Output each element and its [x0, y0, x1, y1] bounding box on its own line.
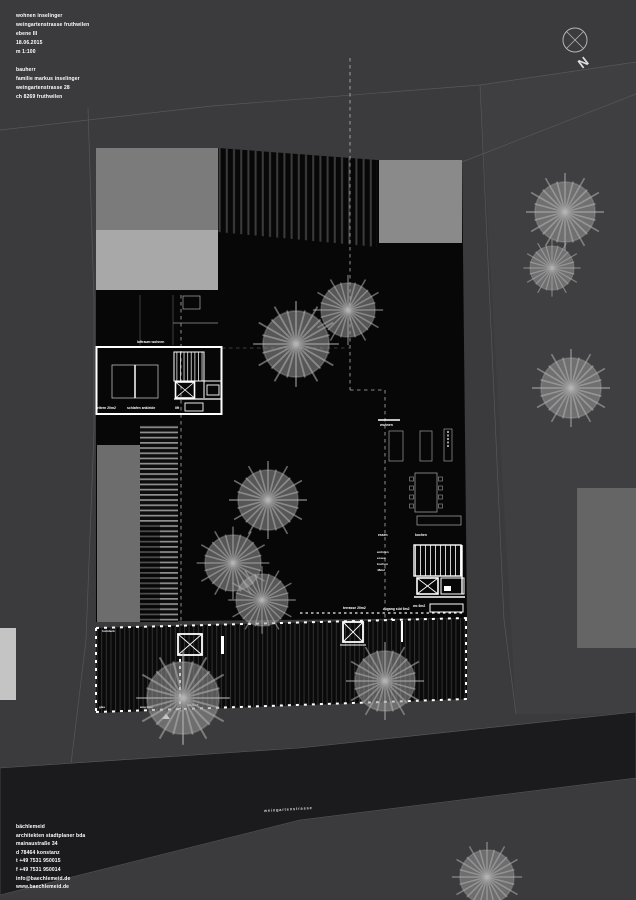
- project-name: wohnen inselinger: [16, 12, 89, 21]
- long-stair-shadow: [140, 525, 160, 622]
- neighbor-building-west: [0, 628, 16, 700]
- stair-main: [414, 545, 461, 576]
- label-deck: holzdeck: [102, 629, 115, 633]
- label-essen: essen: [378, 533, 388, 537]
- west-deck: [97, 445, 140, 622]
- roof-terrace-upper: [96, 148, 218, 230]
- label-wohnen: wohnen: [379, 423, 393, 427]
- firm-website: www.baechlemeid.de: [16, 883, 85, 892]
- label-glas: glas: [99, 705, 105, 709]
- project-date: 18.06.2015: [16, 39, 89, 48]
- firm-fax: f +49 7531 950014: [16, 866, 85, 875]
- label-luftraum: luftraum wohnen: [137, 340, 164, 344]
- firm-phone: t +49 7531 950015: [16, 857, 85, 866]
- client-heading: bauherr: [16, 66, 89, 75]
- label-zugang: zugang süd 6m2: [383, 607, 410, 611]
- firm-name: bächlemeid: [16, 823, 85, 832]
- label-eltern: eltern 20m2: [97, 406, 116, 410]
- neighbor-building-east: [577, 488, 636, 648]
- project-street: weingartenstrasse fruthwilen: [16, 21, 89, 30]
- label-stack-2: essen: [377, 556, 386, 560]
- client-street: weingartenstrasse 28: [16, 84, 89, 93]
- label-kochen: kochen: [415, 533, 427, 537]
- label-stack-4: 48m2: [377, 568, 385, 572]
- roof-block-east: [379, 160, 462, 243]
- firm-email: info@baechlemeid.de: [16, 875, 85, 884]
- project-scale: m 1:100: [16, 48, 89, 57]
- firm-city: d 78464 konstanz: [16, 849, 85, 858]
- site-plan-drawing: luftraum wohnen eltern 20m2 schlafen ank…: [0, 0, 636, 900]
- label-wc: wc 6m2: [412, 604, 425, 608]
- title-block: wohnen inselinger weingartenstrasse frut…: [16, 12, 89, 102]
- client-city: ch 8269 fruthwilen: [16, 93, 89, 102]
- label-stack-3: kochen: [377, 562, 388, 566]
- firm-street: mainaustraße 34: [16, 840, 85, 849]
- firm-block: bächlemeid architekten stadtplaner bda m…: [16, 823, 85, 892]
- client-name: familie markus inselinger: [16, 75, 89, 84]
- label-stack-1: wohnen: [376, 550, 389, 554]
- firm-type: architekten stadtplaner bda: [16, 832, 85, 841]
- label-ankleide: schlafen ankleide: [127, 406, 155, 410]
- site-plan-sheet: luftraum wohnen eltern 20m2 schlafen ank…: [0, 0, 636, 900]
- roof-terrace-lower: [96, 230, 218, 290]
- slatted-roof: [218, 148, 377, 247]
- project-level: ebene III: [16, 30, 89, 39]
- building-footprint: [96, 148, 467, 622]
- stair-upper: [174, 352, 204, 381]
- label-terrasse: terrasse 20m2: [343, 606, 366, 610]
